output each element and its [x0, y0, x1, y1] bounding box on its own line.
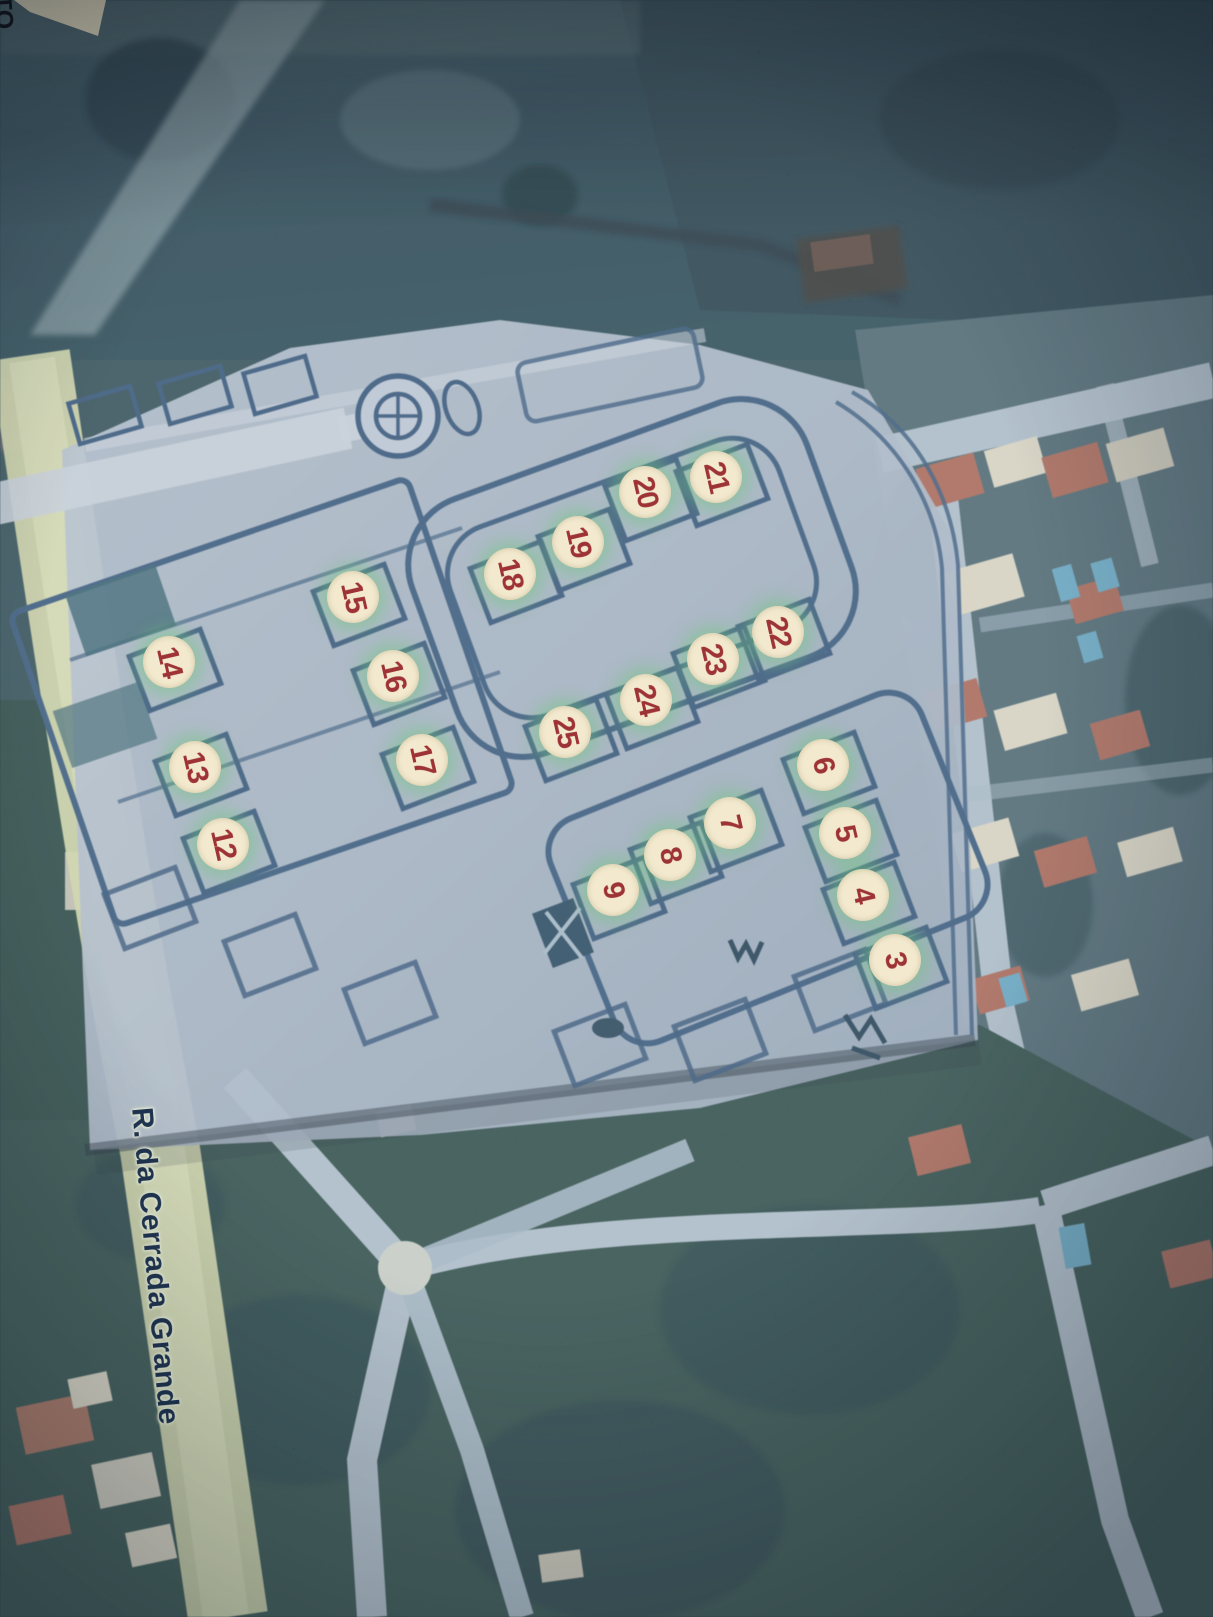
lot-number: 24: [626, 681, 666, 718]
lot-marker-16: 16: [362, 645, 424, 707]
lot-number: 23: [693, 640, 733, 677]
lot-number: 21: [696, 458, 736, 495]
corner-label: TO: [0, 0, 130, 60]
lot-marker-19: 19: [547, 511, 609, 573]
lot-number: 4: [845, 884, 882, 906]
lot-marker-9: 9: [582, 859, 644, 921]
lot-marker-12: 12: [192, 813, 254, 875]
lot-marker-15: 15: [322, 566, 384, 628]
lot-number: 8: [652, 844, 689, 866]
lot-marker-13: 13: [164, 736, 226, 798]
lot-marker-20: 20: [614, 461, 676, 523]
corner-paper: [0, 0, 130, 62]
lot-marker-6: 6: [792, 734, 854, 796]
lot-number: 17: [402, 741, 442, 778]
lot-marker-7: 7: [699, 792, 761, 854]
lot-number: 15: [333, 578, 373, 615]
lot-marker-22: 22: [747, 601, 809, 663]
lot-marker-17: 17: [391, 729, 453, 791]
lot-number: 7: [712, 812, 749, 834]
lot-marker-3: 3: [864, 929, 926, 991]
lot-marker-14: 14: [138, 631, 200, 693]
lot-number: 14: [149, 643, 189, 680]
lot-number: 13: [175, 748, 215, 785]
lot-number: 9: [595, 879, 632, 901]
lot-number: 18: [490, 555, 530, 592]
lot-number: 5: [827, 822, 864, 844]
lot-number: 12: [203, 825, 243, 862]
lot-marker-21: 21: [685, 446, 747, 508]
lot-marker-4: 4: [832, 864, 894, 926]
lot-number: 3: [877, 949, 914, 971]
lot-number: 25: [545, 713, 585, 750]
lot-marker-24: 24: [615, 669, 677, 731]
lot-number: 19: [558, 523, 598, 560]
lot-number: 16: [373, 657, 413, 694]
lot-marker-23: 23: [682, 628, 744, 690]
lot-marker-5: 5: [814, 802, 876, 864]
lot-number: 20: [625, 473, 665, 510]
aerial-photo: 34567891213141516171819202122232425 R. d…: [0, 0, 1213, 1617]
lot-number: 6: [805, 754, 842, 776]
lot-marker-8: 8: [639, 824, 701, 886]
lot-marker-25: 25: [534, 701, 596, 763]
lot-markers-layer: 34567891213141516171819202122232425: [0, 0, 1213, 1617]
lot-number: 22: [758, 613, 798, 650]
corner-label-text: TO: [0, 0, 18, 30]
lot-marker-18: 18: [479, 543, 541, 605]
